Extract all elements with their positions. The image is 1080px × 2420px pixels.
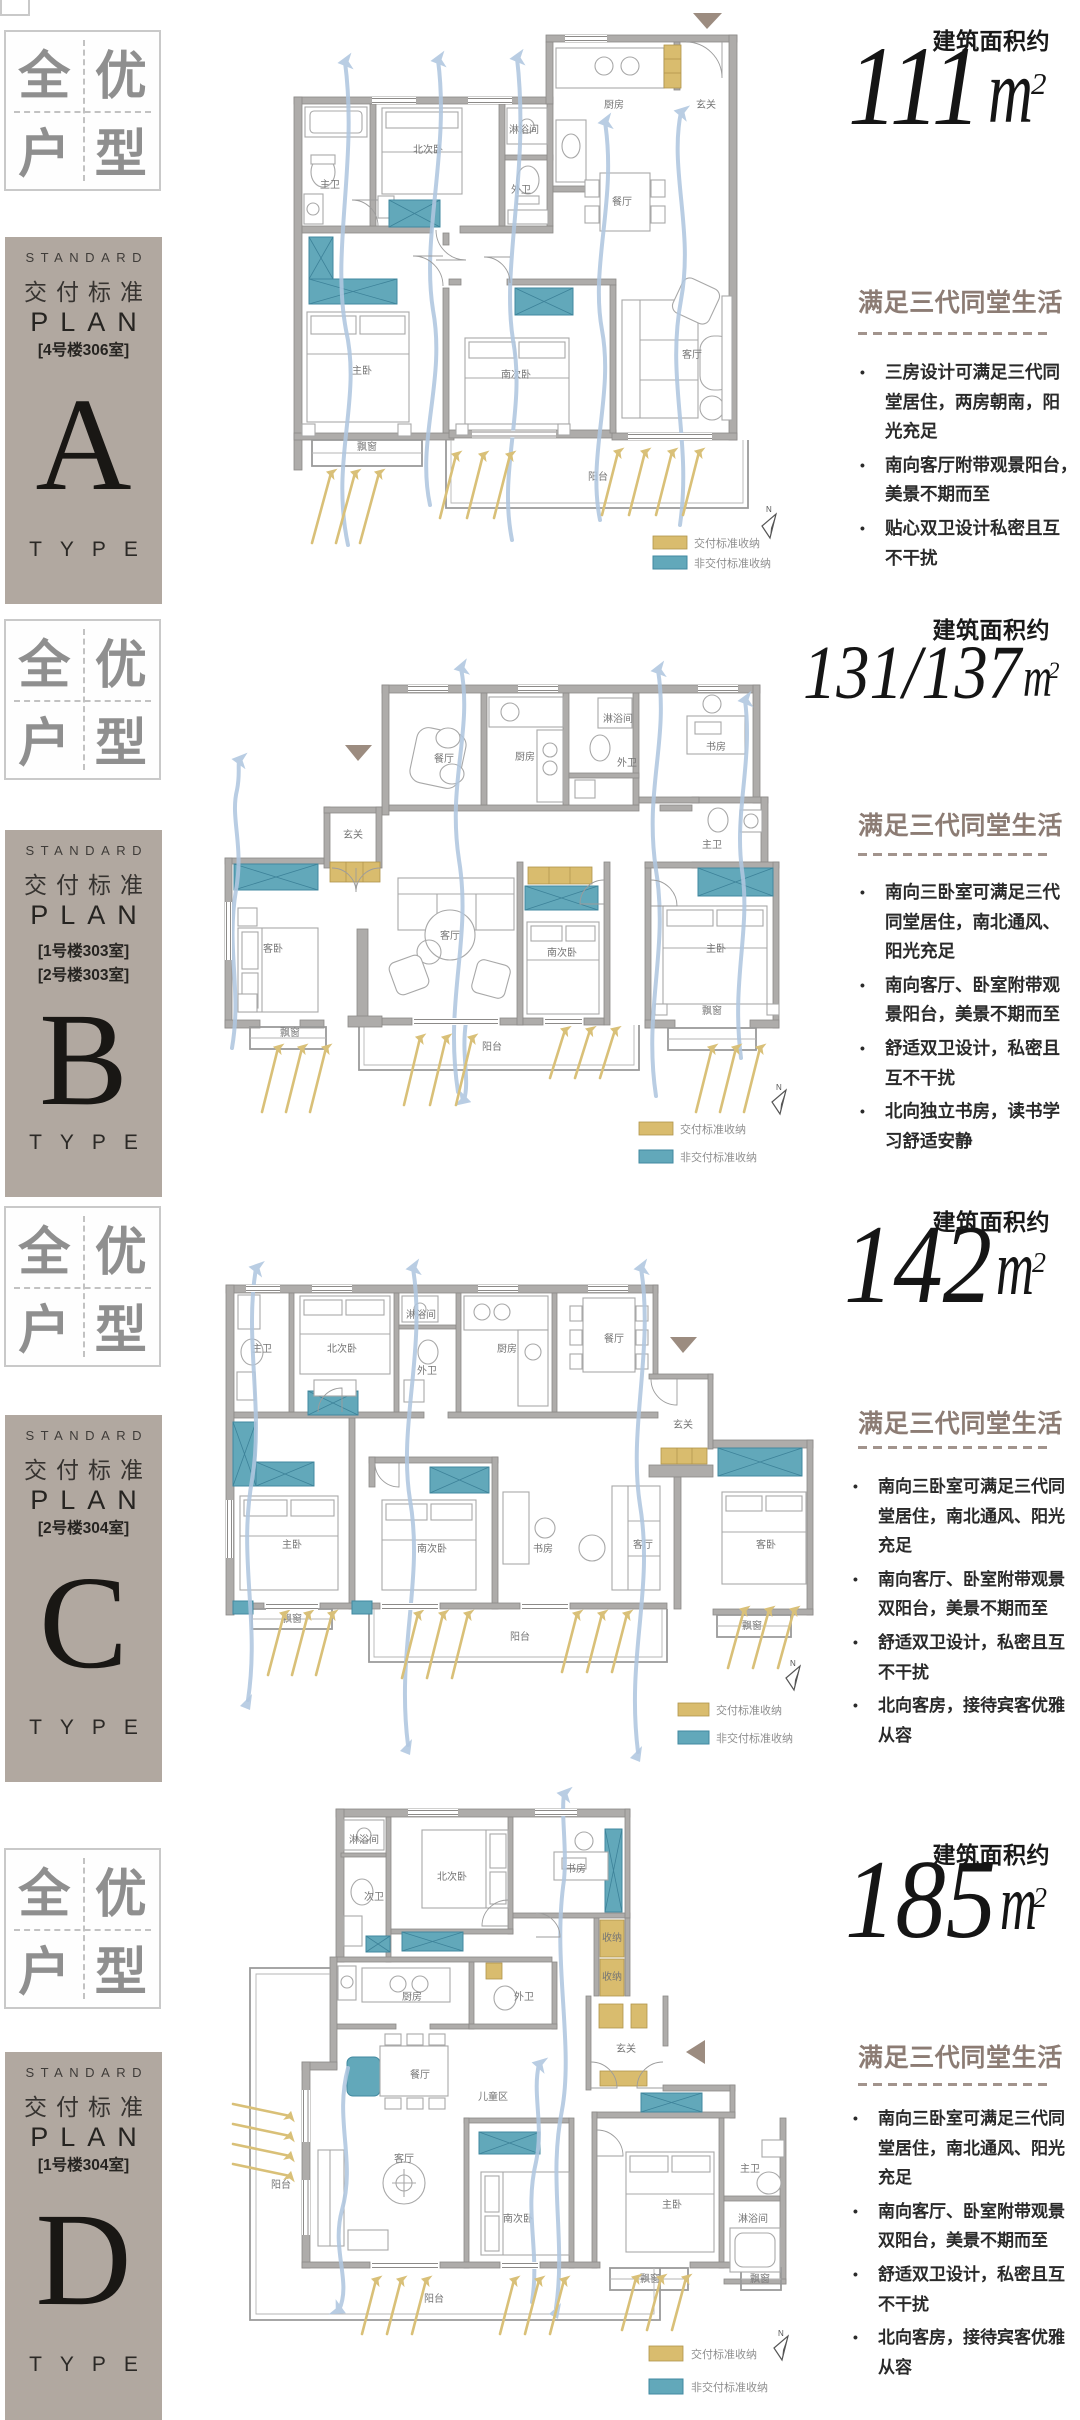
svg-text:餐厅: 餐厅 [612, 195, 632, 208]
svg-text:m: m [996, 1224, 1034, 1311]
svg-text:飘窗: 飘窗 [357, 440, 377, 453]
svg-text:北次卧: 北次卧 [327, 1342, 357, 1355]
svg-text:玄关: 玄关 [616, 2042, 636, 2055]
svg-text:非交付标准收纳: 非交付标准收纳 [680, 1150, 757, 1164]
svg-text:餐厅: 餐厅 [604, 1332, 624, 1345]
svg-text:外卫: 外卫 [514, 1991, 534, 2003]
svg-text:书房: 书房 [533, 1542, 553, 1555]
svg-text:淋浴间: 淋浴间 [349, 1833, 379, 1846]
svg-text:外卫: 外卫 [617, 757, 637, 769]
svg-text:非交付标准收纳: 非交付标准收纳 [694, 556, 771, 570]
svg-text:阳台: 阳台 [424, 2292, 444, 2305]
svg-text:飘窗: 飘窗 [742, 1619, 762, 1632]
svg-text:交付标准收纳: 交付标准收纳 [680, 1122, 746, 1136]
svg-text:收纳: 收纳 [602, 1970, 622, 1983]
svg-text:收纳: 收纳 [602, 1931, 622, 1944]
svg-text:淋浴间: 淋浴间 [406, 1308, 436, 1321]
svg-text:主卫: 主卫 [252, 1343, 272, 1355]
svg-text:2: 2 [1033, 1883, 1047, 1914]
svg-text:客厅: 客厅 [682, 348, 702, 361]
svg-text:厨房: 厨房 [497, 1342, 517, 1355]
svg-text:淋浴间: 淋浴间 [603, 712, 633, 725]
svg-text:客卧: 客卧 [756, 1538, 776, 1551]
svg-text:玄关: 玄关 [673, 1418, 693, 1431]
svg-text:书房: 书房 [566, 1862, 586, 1875]
svg-text:阳台: 阳台 [271, 2178, 291, 2191]
svg-text:外卫: 外卫 [417, 1365, 437, 1377]
svg-text:N: N [776, 1083, 782, 1092]
svg-text:外卫: 外卫 [511, 184, 531, 196]
svg-text:131/137: 131/137 [803, 631, 1024, 715]
svg-text:南次卧: 南次卧 [503, 2212, 533, 2225]
svg-text:142: 142 [844, 1203, 992, 1327]
svg-text:主卫: 主卫 [740, 2163, 760, 2175]
svg-text:m: m [988, 41, 1033, 142]
svg-text:主卧: 主卧 [352, 364, 372, 377]
svg-text:飘窗: 飘窗 [702, 1004, 722, 1017]
svg-text:交付标准收纳: 交付标准收纳 [691, 2347, 757, 2361]
svg-text:厨房: 厨房 [604, 98, 624, 111]
svg-text:餐厅: 餐厅 [410, 2068, 430, 2081]
svg-text:客厅: 客厅 [394, 2152, 414, 2165]
svg-text:玄关: 玄关 [343, 828, 363, 841]
svg-text:主卧: 主卧 [282, 1538, 302, 1551]
svg-text:次卫: 次卫 [364, 1890, 384, 1903]
svg-text:南次卧: 南次卧 [547, 946, 577, 959]
svg-text:N: N [778, 2329, 784, 2338]
svg-text:玄关: 玄关 [696, 98, 716, 111]
svg-text:N: N [766, 505, 772, 514]
svg-text:飘窗: 飘窗 [640, 2272, 660, 2285]
svg-text:北次卧: 北次卧 [437, 1870, 467, 1883]
svg-text:N: N [790, 1659, 796, 1668]
svg-text:阳台: 阳台 [482, 1040, 502, 1053]
svg-text:客卧: 客卧 [263, 942, 283, 955]
svg-text:主卫: 主卫 [702, 839, 722, 851]
svg-text:南次卧: 南次卧 [417, 1542, 447, 1555]
svg-text:2: 2 [1048, 658, 1060, 683]
svg-text:主卫: 主卫 [320, 179, 340, 191]
svg-text:2: 2 [1031, 66, 1047, 101]
svg-text:185: 185 [845, 1838, 996, 1962]
svg-text:交付标准收纳: 交付标准收纳 [694, 536, 760, 550]
svg-text:交付标准收纳: 交付标准收纳 [716, 1703, 782, 1717]
svg-text:淋浴间: 淋浴间 [738, 2212, 768, 2225]
svg-text:客厅: 客厅 [440, 929, 460, 942]
svg-text:m: m [1000, 1859, 1037, 1946]
svg-text:2: 2 [1032, 1248, 1046, 1279]
svg-text:厨房: 厨房 [515, 750, 535, 763]
svg-text:飘窗: 飘窗 [750, 2272, 770, 2285]
svg-text:餐厅: 餐厅 [434, 752, 454, 765]
svg-text:主卧: 主卧 [706, 942, 726, 955]
svg-text:儿童区: 儿童区 [478, 2090, 508, 2103]
svg-text:非交付标准收纳: 非交付标准收纳 [691, 2380, 768, 2394]
svg-text:111: 111 [848, 24, 981, 149]
svg-text:书房: 书房 [706, 740, 726, 753]
svg-text:非交付标准收纳: 非交付标准收纳 [716, 1731, 793, 1745]
svg-text:飘窗: 飘窗 [280, 1026, 300, 1039]
svg-text:淋浴间: 淋浴间 [509, 123, 539, 136]
svg-text:厨房: 厨房 [402, 1990, 422, 2003]
svg-text:主卧: 主卧 [662, 2198, 682, 2211]
svg-text:阳台: 阳台 [510, 1630, 530, 1643]
